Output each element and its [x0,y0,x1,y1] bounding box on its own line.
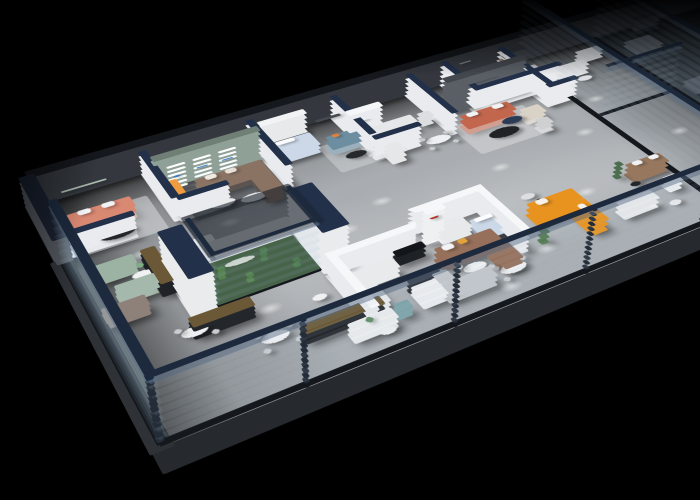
floor-spotlight [567,124,603,141]
dining-chair [452,139,460,143]
side-table [311,292,329,302]
showroom-render [0,0,700,500]
floor-spotlight [482,158,520,176]
floor [40,5,700,445]
floor-spotlight [362,191,401,211]
dining-chair [211,328,221,335]
desk [519,192,537,201]
dining-table [423,133,453,147]
dining-chair [428,146,437,150]
